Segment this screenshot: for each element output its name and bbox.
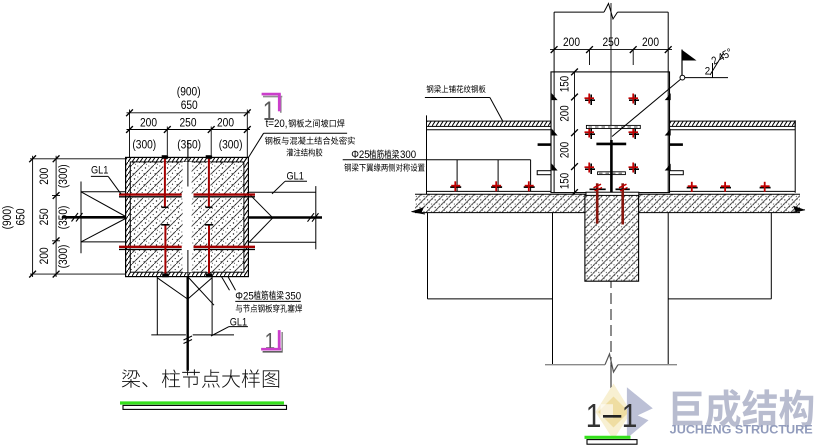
- svg-text:200: 200: [217, 117, 234, 130]
- svg-text:200: 200: [642, 37, 659, 50]
- svg-text:Φ25: Φ25: [235, 291, 254, 303]
- svg-text:(900): (900): [177, 86, 201, 99]
- svg-text:250: 250: [602, 37, 619, 50]
- svg-text:150: 150: [559, 173, 572, 189]
- svg-text:(300): (300): [57, 164, 70, 188]
- svg-text:GL1: GL1: [91, 165, 109, 177]
- svg-text:250: 250: [179, 117, 196, 130]
- svg-text:200: 200: [563, 37, 580, 50]
- svg-text:(300): (300): [57, 244, 70, 268]
- svg-text:2: 2: [705, 66, 711, 78]
- svg-text:650: 650: [15, 208, 28, 225]
- svg-text:45°: 45°: [716, 47, 735, 64]
- svg-text:1: 1: [263, 97, 275, 127]
- svg-text:200: 200: [140, 117, 157, 130]
- svg-text:(900): (900): [1, 205, 14, 229]
- svg-text:(350): (350): [57, 205, 70, 229]
- svg-text:650: 650: [181, 99, 198, 112]
- svg-text:(300): (300): [219, 139, 243, 152]
- svg-text:200: 200: [559, 142, 572, 158]
- svg-text:200: 200: [38, 168, 51, 185]
- svg-text:350: 350: [285, 291, 301, 303]
- svg-text:1: 1: [265, 330, 275, 355]
- svg-text:JUCHENG STRUCTURE: JUCHENG STRUCTURE: [670, 422, 813, 436]
- svg-text:150: 150: [559, 76, 572, 92]
- svg-text:1: 1: [622, 398, 638, 435]
- svg-text:250: 250: [38, 208, 51, 225]
- svg-text:200: 200: [559, 105, 572, 121]
- svg-text:(300): (300): [132, 139, 156, 152]
- svg-text:200: 200: [38, 247, 51, 264]
- svg-text:1: 1: [586, 398, 602, 435]
- svg-text:(350): (350): [177, 139, 201, 152]
